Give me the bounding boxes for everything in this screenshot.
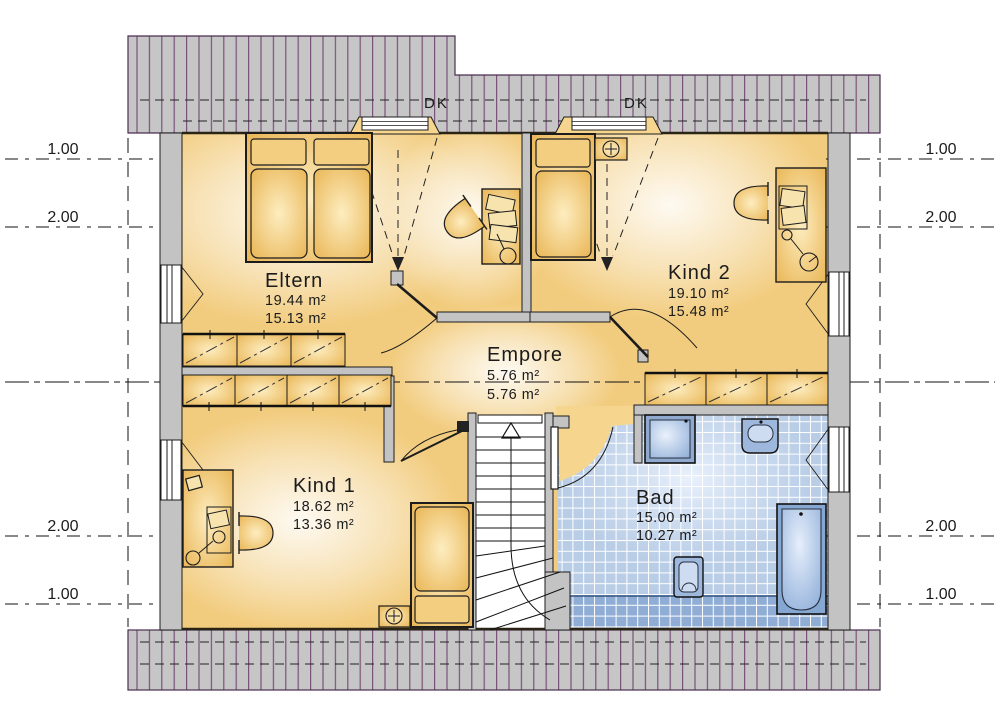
dim-left-top-1: 1.00 xyxy=(47,141,78,158)
bathtub xyxy=(777,504,826,614)
roof-window-label-2: DK xyxy=(624,95,649,112)
sink xyxy=(742,419,778,453)
room-area1-eltern: 19.44 m² xyxy=(265,293,326,309)
toilet xyxy=(674,557,703,597)
wardrobe-eltern xyxy=(183,330,345,366)
jamb-eltern-door xyxy=(391,271,403,285)
floor-plan-page: Eltern 19.44 m² 15.13 m² Kind 2 19.10 m²… xyxy=(0,0,1000,723)
room-area1-kind2: 19.10 m² xyxy=(668,286,729,302)
wardrobe-kind1 xyxy=(183,375,391,411)
dim-right-bottom-1: 1.00 xyxy=(925,586,956,603)
room-area2-empore: 5.76 m² xyxy=(487,387,540,403)
roof-window-label-1: DK xyxy=(424,95,449,112)
wall-shower-stub xyxy=(634,415,642,463)
room-label-kind1: Kind 1 xyxy=(293,475,356,497)
room-area2-kind1: 13.36 m² xyxy=(293,517,354,533)
wall-eltern-kind2 xyxy=(522,133,531,312)
wall-stair-step xyxy=(545,572,570,630)
room-area2-eltern: 15.13 m² xyxy=(265,311,326,327)
wall-exterior-right xyxy=(828,133,850,630)
wall-exterior-left xyxy=(160,133,182,630)
wall-bad-north xyxy=(634,405,828,415)
desk-eltern xyxy=(482,189,520,264)
room-area1-kind1: 18.62 m² xyxy=(293,499,354,515)
room-area2-bad: 10.27 m² xyxy=(636,528,697,544)
room-label-bad: Bad xyxy=(636,487,675,509)
room-label-kind2: Kind 2 xyxy=(668,262,731,284)
dim-right-top-1: 1.00 xyxy=(925,141,956,158)
wall-empore-kind2 xyxy=(530,312,610,322)
roof-band-bottom xyxy=(128,630,880,690)
shower xyxy=(645,415,695,463)
room-area2-kind2: 15.48 m² xyxy=(668,304,729,320)
dim-left-bottom-2: 2.00 xyxy=(47,518,78,535)
desk-kind2 xyxy=(776,168,826,282)
wardrobe-kind2 xyxy=(645,369,828,405)
room-label-empore: Empore xyxy=(487,344,563,366)
wall-eltern-south xyxy=(437,312,530,322)
dim-right-bottom-2: 2.00 xyxy=(925,518,956,535)
desk-kind1 xyxy=(183,470,233,567)
dim-left-bottom-1: 1.00 xyxy=(47,586,78,603)
floor-plan-svg: Eltern 19.44 m² 15.13 m² Kind 2 19.10 m²… xyxy=(0,0,1000,723)
roof-band-top xyxy=(128,36,880,133)
dim-left-top-2: 2.00 xyxy=(47,209,78,226)
bed-eltern xyxy=(246,133,372,262)
room-area1-empore: 5.76 m² xyxy=(487,368,540,384)
room-area1-bad: 15.00 m² xyxy=(636,510,697,526)
room-label-eltern: Eltern xyxy=(265,270,323,292)
jamb-bad-door xyxy=(553,416,569,428)
dim-right-top-2: 2.00 xyxy=(925,209,956,226)
stair-landing xyxy=(478,415,542,423)
